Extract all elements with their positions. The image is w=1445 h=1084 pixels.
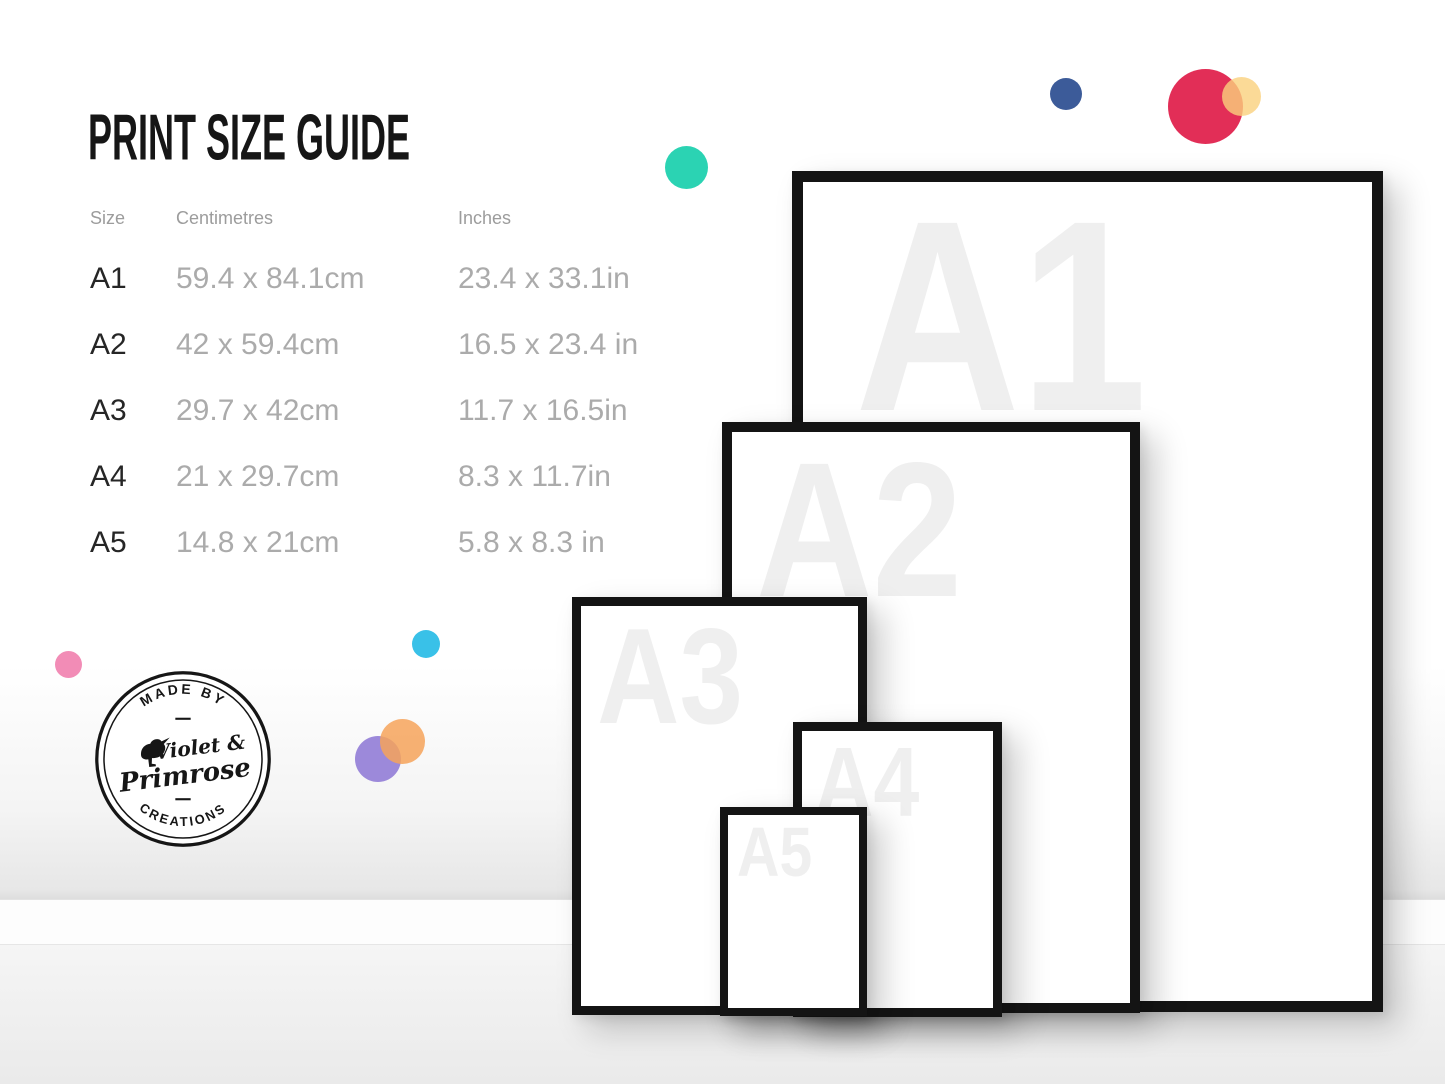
inches-value: 11.7 x 16.5in: [458, 394, 628, 428]
size-label: A5: [90, 526, 127, 560]
cm-value: 14.8 x 21cm: [176, 526, 339, 560]
page-title: PRINT SIZE GUIDE: [88, 100, 410, 175]
size-label: A4: [90, 460, 127, 494]
table-row: A2 42 x 59.4cm 16.5 x 23.4 in: [90, 328, 670, 368]
frame-a5: A5: [720, 807, 867, 1016]
orange-dot: [380, 719, 425, 764]
frame-a1-label: A1: [855, 180, 1147, 452]
size-label: A1: [90, 262, 127, 296]
cm-value: 59.4 x 84.1cm: [176, 262, 364, 296]
cyan-dot: [412, 630, 440, 658]
print-size-guide-poster: PRINT SIZE GUIDE Size Centimetres Inches…: [0, 0, 1445, 1084]
inches-value: 8.3 x 11.7in: [458, 460, 611, 494]
table-header-row: Size Centimetres Inches: [90, 208, 670, 248]
maker-stamp-logo: MADE BY CREATIONS Violet & Primrose: [92, 668, 274, 850]
yellow-dot: [1222, 77, 1261, 116]
cm-value: 21 x 29.7cm: [176, 460, 339, 494]
table-row: A4 21 x 29.7cm 8.3 x 11.7in: [90, 460, 670, 500]
pink-dot: [55, 651, 82, 678]
frame-a3-label: A3: [597, 608, 743, 744]
table-row: A5 14.8 x 21cm 5.8 x 8.3 in: [90, 526, 670, 566]
stamp-svg: MADE BY CREATIONS Violet & Primrose: [92, 668, 274, 850]
teal-dot: [665, 146, 708, 189]
cm-value: 29.7 x 42cm: [176, 394, 339, 428]
size-label: A3: [90, 394, 127, 428]
header-inches: Inches: [458, 208, 511, 229]
header-size: Size: [90, 208, 125, 229]
inches-value: 23.4 x 33.1in: [458, 262, 630, 296]
inches-value: 16.5 x 23.4 in: [458, 328, 638, 362]
header-centimetres: Centimetres: [176, 208, 273, 229]
table-row: A1 59.4 x 84.1cm 23.4 x 33.1in: [90, 262, 670, 302]
navy-dot: [1050, 78, 1082, 110]
table-row: A3 29.7 x 42cm 11.7 x 16.5in: [90, 394, 670, 434]
frame-a5-label: A5: [737, 817, 812, 887]
inches-value: 5.8 x 8.3 in: [458, 526, 605, 560]
cm-value: 42 x 59.4cm: [176, 328, 339, 362]
size-label: A2: [90, 328, 127, 362]
